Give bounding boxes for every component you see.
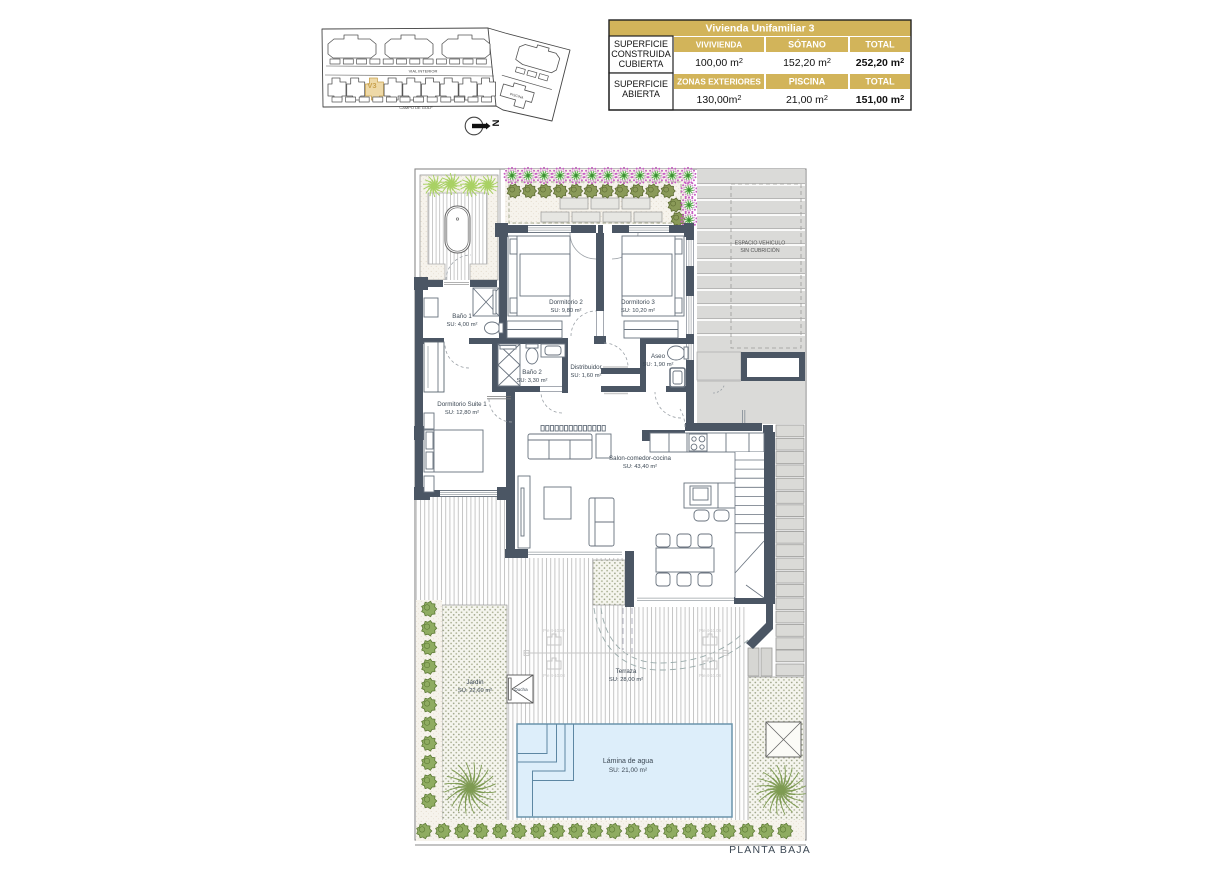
svg-text:Pte 4-10.08: Pte 4-10.08: [543, 673, 565, 678]
svg-text:Jardín: Jardín: [466, 679, 484, 686]
svg-text:Aseo: Aseo: [651, 353, 666, 360]
svg-text:Baño 1: Baño 1: [452, 313, 472, 320]
svg-text:100,00 m2: 100,00 m2: [695, 56, 743, 69]
svg-text:SU: 1,90 m²: SU: 1,90 m²: [643, 362, 674, 368]
svg-text:CUBIERTA: CUBIERTA: [619, 59, 664, 69]
svg-text:SU: 21,00 m²: SU: 21,00 m²: [609, 767, 648, 774]
svg-text:Pte 4-10.08: Pte 4-10.08: [699, 673, 721, 678]
svg-text:ESPACIO VEHICULO: ESPACIO VEHICULO: [735, 241, 786, 247]
svg-text:Pte 4-10.08: Pte 4-10.08: [543, 628, 565, 633]
svg-text:Salon-comedor-cocina: Salon-comedor-cocina: [609, 455, 671, 462]
svg-text:Dormitorio 2: Dormitorio 2: [549, 299, 583, 306]
svg-text:Vivienda Unifamiliar 3: Vivienda Unifamiliar 3: [706, 23, 815, 35]
svg-text:SU: 9,80 m²: SU: 9,80 m²: [551, 308, 582, 314]
svg-text:ZONAS EXTERIORES: ZONAS EXTERIORES: [677, 78, 761, 87]
svg-text:SU: 1,60 m²: SU: 1,60 m²: [571, 373, 602, 379]
svg-text:Terraza: Terraza: [616, 668, 637, 675]
svg-text:PLANTA BAJA: PLANTA BAJA: [729, 844, 811, 856]
svg-text:151,00 m2: 151,00 m2: [856, 93, 904, 106]
svg-text:SU: 22,60 m²: SU: 22,60 m²: [458, 688, 492, 694]
svg-text:Ducha: Ducha: [514, 687, 528, 692]
svg-text:VIAL INTERIOR: VIAL INTERIOR: [409, 69, 438, 74]
svg-text:CAMPO DE GOLF: CAMPO DE GOLF: [399, 105, 433, 110]
svg-text:SU: 28,00 m²: SU: 28,00 m²: [609, 677, 643, 683]
svg-text:SU: 3,30 m²: SU: 3,30 m²: [517, 378, 548, 384]
svg-text:SUPERFICIE: SUPERFICIE: [614, 39, 668, 49]
svg-text:152,20 m2: 152,20 m2: [783, 56, 831, 69]
svg-text:Baño 2: Baño 2: [522, 369, 542, 376]
svg-text:PISCINA: PISCINA: [789, 77, 826, 87]
svg-text:SU: 4,00 m²: SU: 4,00 m²: [447, 322, 478, 328]
svg-text:V3: V3: [367, 81, 376, 90]
svg-text:130,00m2: 130,00m2: [697, 93, 742, 106]
svg-text:SÓTANO: SÓTANO: [788, 39, 826, 50]
svg-text:SU: 10,20 m²: SU: 10,20 m²: [621, 308, 655, 314]
svg-text:Pte 4-10.08: Pte 4-10.08: [699, 628, 721, 633]
svg-text:SUPERFICIE: SUPERFICIE: [614, 79, 668, 89]
svg-text:SU: 43,40 m²: SU: 43,40 m²: [623, 464, 657, 470]
svg-text:21,00 m2: 21,00 m2: [786, 93, 828, 106]
svg-text:TOTAL: TOTAL: [865, 77, 895, 87]
svg-text:Dormitorio Suite 1: Dormitorio Suite 1: [437, 401, 487, 408]
svg-text:252,20 m2: 252,20 m2: [856, 56, 904, 69]
svg-text:SU: 12,80 m²: SU: 12,80 m²: [445, 410, 479, 416]
svg-text:Lámina de agua: Lámina de agua: [603, 758, 653, 765]
svg-text:N: N: [489, 120, 500, 127]
svg-text:ABIERTA: ABIERTA: [622, 89, 660, 99]
svg-text:Distribuidor: Distribuidor: [570, 364, 601, 371]
svg-text:SIN CUBRICIÓN: SIN CUBRICIÓN: [740, 247, 779, 254]
svg-text:TOTAL: TOTAL: [865, 40, 895, 50]
svg-text:Dormitorio 3: Dormitorio 3: [621, 299, 655, 306]
svg-text:VIVIVIENDA: VIVIVIENDA: [696, 41, 742, 50]
svg-text:CONSTRUIDA: CONSTRUIDA: [611, 49, 671, 59]
